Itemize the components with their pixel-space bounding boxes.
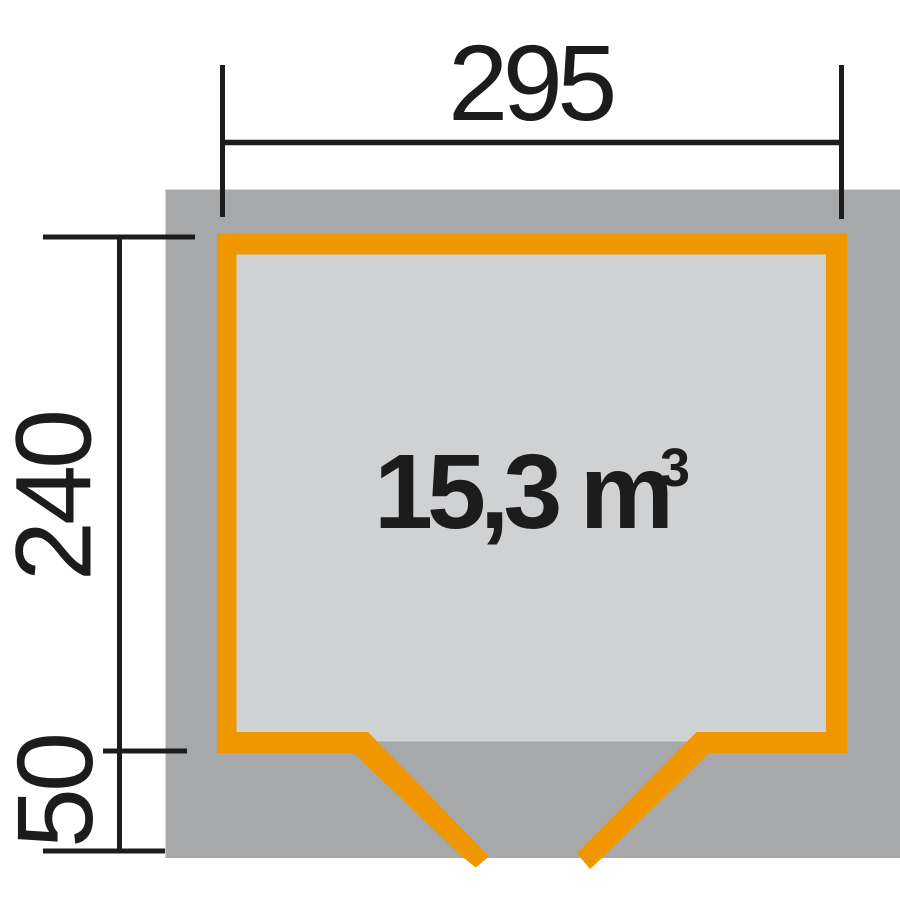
svg-text:295: 295 bbox=[448, 22, 613, 143]
svg-text:240: 240 bbox=[0, 413, 114, 581]
svg-text:50: 50 bbox=[0, 736, 115, 848]
svg-text:15,3 m3: 15,3 m3 bbox=[374, 433, 689, 551]
